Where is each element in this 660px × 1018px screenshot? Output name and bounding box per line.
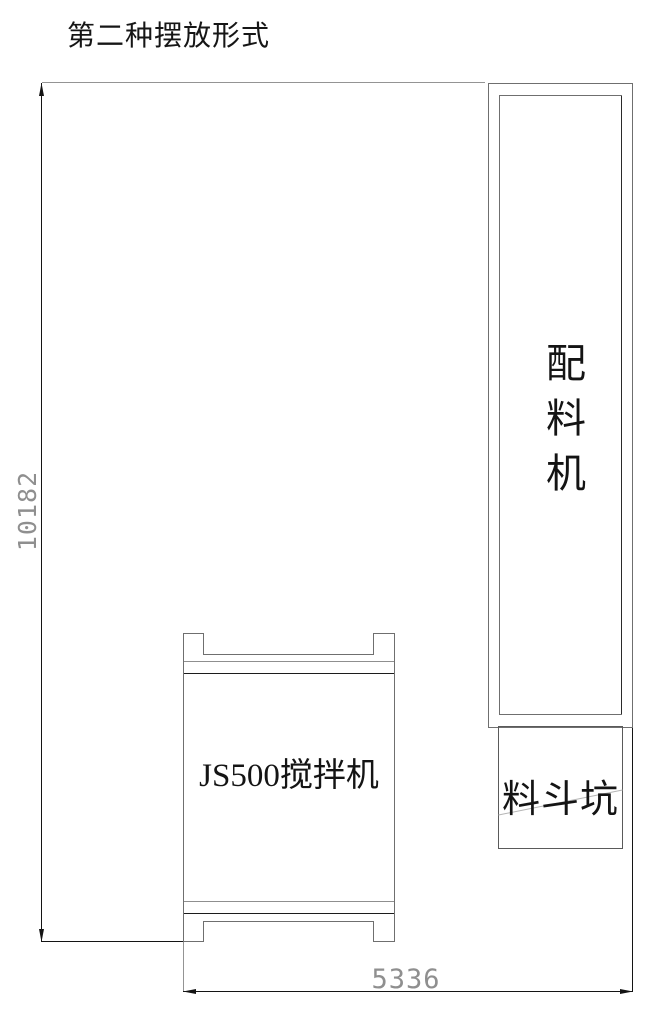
width-dimension-arrow-left — [183, 989, 196, 994]
drawing-linework — [0, 0, 660, 1018]
batching-machine-label: 配料机 — [534, 342, 582, 507]
height-dimension-arrow-bottom — [39, 929, 44, 942]
mixer-label: JS500搅拌机 — [183, 758, 395, 794]
height-dimension-arrow-top — [39, 83, 44, 96]
width-dimension-text: 5336 — [346, 964, 466, 995]
hopper-pit-label: 料斗坑 — [498, 781, 623, 819]
width-dimension-arrow-right — [620, 989, 633, 994]
drawing-canvas: 第二种摆放形式 配料机 料斗坑 JS500搅拌机 10182 5336 — [0, 0, 660, 1018]
page-title: 第二种摆放形式 — [67, 14, 270, 54]
height-dimension-text: 10182 — [13, 450, 41, 572]
